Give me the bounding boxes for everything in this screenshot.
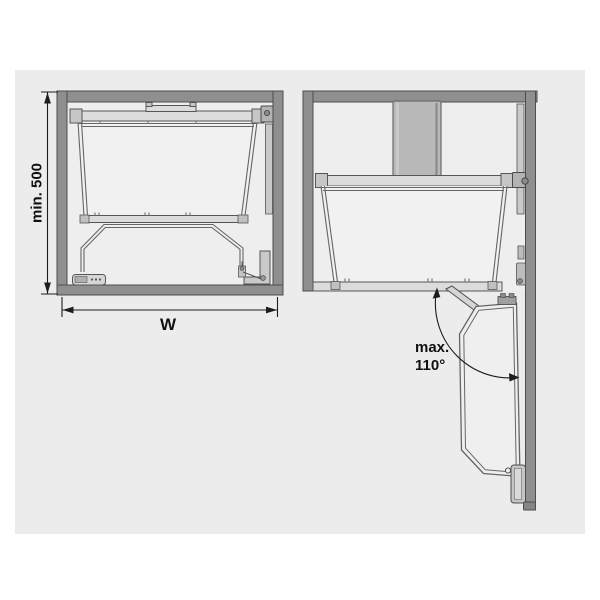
cabinet-bottom-panel <box>57 285 283 295</box>
bottom-pivot-bracket <box>517 263 526 285</box>
hinge-pin <box>522 178 528 184</box>
flap-frame-bottom-bar <box>82 216 247 223</box>
top-rail-cap-left <box>70 109 82 123</box>
flap-frame-bottom-bar <box>313 282 502 291</box>
top-rail-cap-right <box>501 174 513 188</box>
cabinet-left-panel <box>303 91 313 291</box>
min-height-label: min. 500 <box>29 163 46 223</box>
top-pivot-hinge <box>261 106 273 122</box>
center-duct <box>393 101 441 178</box>
page: min. 500 W <box>0 0 600 600</box>
cabinet-top-panel <box>57 91 283 102</box>
top-rail-bar <box>72 111 262 121</box>
flap-frame-bottom-cap-left <box>331 282 340 290</box>
top-rail-bar <box>318 176 512 187</box>
hinge-pin <box>264 110 269 115</box>
right-mounting-profile <box>266 124 273 214</box>
max-label: max. <box>415 339 449 356</box>
profile-lower-clip <box>518 246 524 259</box>
right-mounting-profile <box>517 104 524 214</box>
rail-handle-bracket <box>146 106 196 112</box>
diagram-canvas: min. 500 W <box>0 0 600 600</box>
cabinet-left-panel <box>57 91 67 295</box>
runner-foot <box>73 275 106 286</box>
angle-value-label: 110° <box>415 357 445 374</box>
rail-handle-bump-left <box>146 103 152 107</box>
flap-frame <box>78 122 257 223</box>
door-frame-outer <box>460 303 521 477</box>
width-label: W <box>160 315 177 334</box>
flap-frame <box>313 186 507 291</box>
cabinet-top-panel <box>303 91 537 102</box>
flap-frame-bottom-cap-right <box>488 282 497 290</box>
rail-handle-bump-right <box>190 103 196 107</box>
flap-frame-bottom-cap-left <box>80 215 89 223</box>
open-door-panel-side <box>526 91 536 510</box>
cabinet-right-panel <box>273 91 283 295</box>
door-panel-bottom-cap <box>524 502 536 510</box>
top-rail-cap-left <box>316 174 328 188</box>
flap-frame-fill <box>79 122 257 216</box>
flap-frame-bottom-cap-right <box>238 215 248 223</box>
flap-frame-fill <box>321 186 507 282</box>
